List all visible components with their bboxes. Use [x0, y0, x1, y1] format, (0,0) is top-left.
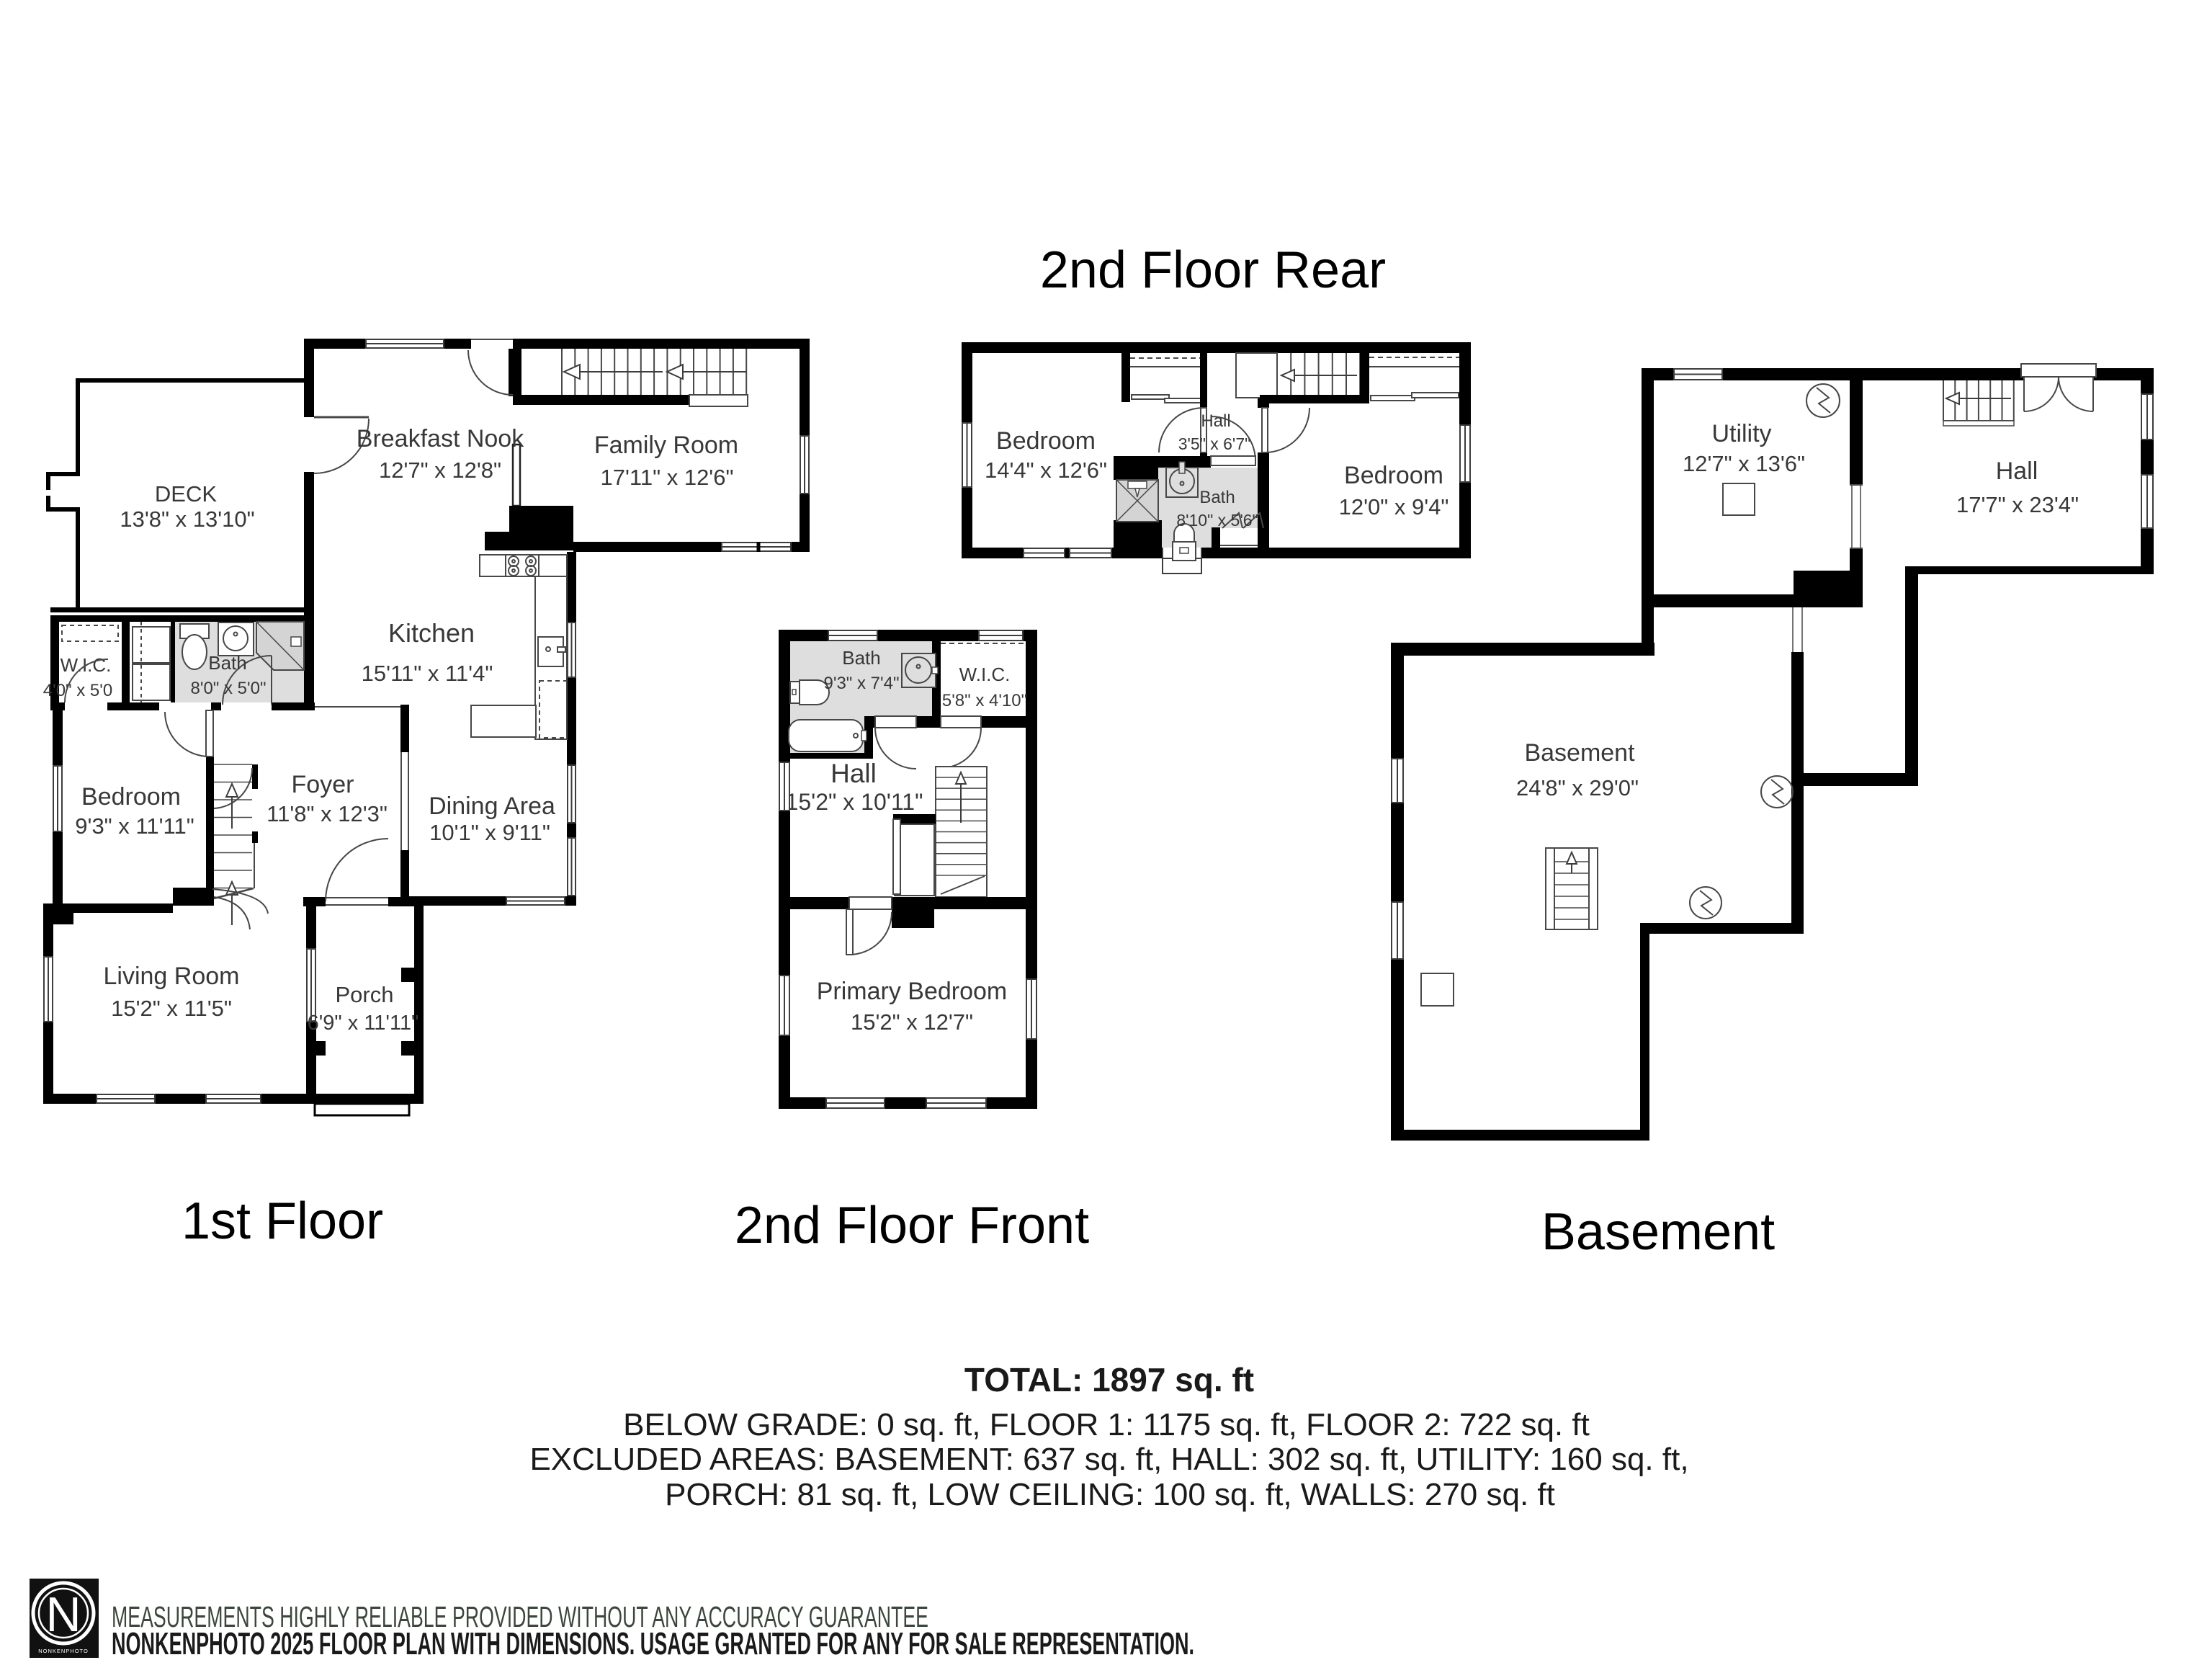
svg-text:17'7" x 23'4": 17'7" x 23'4"	[1956, 492, 2079, 517]
svg-text:12'7" x 12'8": 12'7" x 12'8"	[379, 458, 501, 483]
svg-text:11'8" x 12'3": 11'8" x 12'3"	[267, 801, 388, 826]
svg-text:8'0" x 5'0": 8'0" x 5'0"	[191, 679, 267, 698]
svg-text:Bedroom: Bedroom	[81, 783, 181, 811]
svg-text:12'0" x 9'4": 12'0" x 9'4"	[1339, 494, 1449, 519]
svg-text:17'11" x 12'6": 17'11" x 12'6"	[601, 465, 734, 490]
svg-text:15'2" x 12'7": 15'2" x 12'7"	[851, 1009, 973, 1035]
svg-text:Bath: Bath	[208, 652, 247, 674]
svg-text:NONKENPHOTO: NONKENPHOTO	[38, 1648, 89, 1654]
svg-text:DECK: DECK	[155, 481, 217, 507]
svg-text:Hall: Hall	[830, 759, 877, 788]
svg-text:9'3" x 11'11": 9'3" x 11'11"	[75, 813, 194, 839]
svg-text:Porch: Porch	[336, 982, 394, 1007]
svg-text:1st Floor: 1st Floor	[182, 1192, 383, 1250]
svg-text:Living Room: Living Room	[104, 963, 240, 990]
svg-text:Hall: Hall	[1996, 458, 2038, 485]
svg-text:BELOW GRADE: 0 sq. ft, FLOOR 1: BELOW GRADE: 0 sq. ft, FLOOR 1: 1175 sq.…	[623, 1407, 1590, 1442]
svg-text:Foyer: Foyer	[292, 771, 354, 798]
svg-text:9'3" x 7'4": 9'3" x 7'4"	[824, 674, 900, 693]
svg-text:PORCH: 81 sq. ft, LOW CEILING:: PORCH: 81 sq. ft, LOW CEILING: 100 sq. f…	[665, 1477, 1555, 1512]
svg-text:8'10" x 5'6": 8'10" x 5'6"	[1176, 511, 1258, 530]
svg-text:Bath: Bath	[1199, 488, 1235, 507]
svg-text:Basement: Basement	[1524, 739, 1635, 767]
svg-text:2nd Floor Front: 2nd Floor Front	[735, 1197, 1089, 1254]
svg-text:4'0" x 5'0: 4'0" x 5'0	[43, 681, 112, 700]
svg-text:3'5" x 6'7": 3'5" x 6'7"	[1178, 434, 1251, 453]
svg-text:15'11" x 11'4": 15'11" x 11'4"	[362, 661, 493, 686]
svg-text:Kitchen: Kitchen	[388, 618, 475, 648]
svg-text:14'4" x 12'6": 14'4" x 12'6"	[985, 458, 1107, 483]
svg-text:15'2" x 10'11": 15'2" x 10'11"	[786, 789, 923, 815]
svg-text:W.I.C.: W.I.C.	[959, 664, 1011, 685]
svg-text:13'8" x 13'10": 13'8" x 13'10"	[120, 507, 254, 532]
svg-text:5'8" x 4'10": 5'8" x 4'10"	[942, 691, 1027, 710]
svg-text:NONKENPHOTO 2025 FLOOR PLAN W: NONKENPHOTO 2025 FLOOR PLAN WITH DIMENSI…	[112, 1626, 1194, 1660]
svg-text:10'1" x 9'11": 10'1" x 9'11"	[429, 820, 550, 845]
svg-text:Basement: Basement	[1541, 1203, 1775, 1261]
svg-text:Primary Bedroom: Primary Bedroom	[817, 978, 1008, 1005]
svg-text:15'2" x 11'5": 15'2" x 11'5"	[111, 996, 232, 1021]
svg-text:24'8" x 29'0": 24'8" x 29'0"	[1516, 775, 1639, 800]
svg-text:N: N	[45, 1587, 81, 1642]
svg-text:TOTAL: 1897 sq. ft: TOTAL: 1897 sq. ft	[964, 1361, 1254, 1398]
svg-text:EXCLUDED AREAS: BASEMENT: 637: EXCLUDED AREAS: BASEMENT: 637 sq. ft, HA…	[529, 1442, 1688, 1477]
svg-text:Dining Area: Dining Area	[429, 793, 555, 820]
svg-text:Breakfast Nook: Breakfast Nook	[357, 425, 524, 452]
svg-text:Bedroom: Bedroom	[996, 427, 1096, 455]
svg-text:Utility: Utility	[1711, 420, 1771, 447]
svg-text:6'9" x 11'11": 6'9" x 11'11"	[308, 1012, 419, 1035]
svg-text:Hall: Hall	[1201, 411, 1230, 431]
svg-text:Bedroom: Bedroom	[1344, 462, 1443, 489]
svg-text:2nd Floor Rear: 2nd Floor Rear	[1040, 241, 1386, 299]
svg-text:Family Room: Family Room	[594, 432, 738, 459]
svg-text:Bath: Bath	[842, 647, 881, 669]
svg-text:12'7" x 13'6": 12'7" x 13'6"	[1683, 451, 1805, 476]
